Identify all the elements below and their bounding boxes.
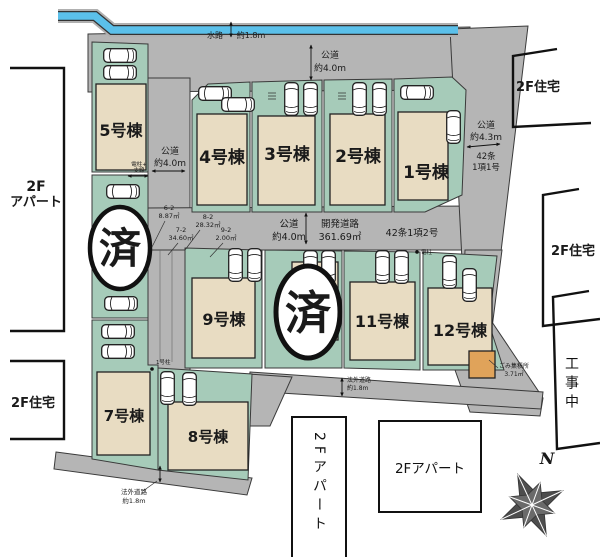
house-ne-label: 2F住宅 bbox=[516, 79, 560, 95]
car-icon bbox=[104, 66, 137, 80]
bldg-4-label: 4号棟 bbox=[199, 147, 246, 168]
pole-label: 電柱 bbox=[421, 248, 433, 256]
car-icon bbox=[102, 345, 135, 359]
south-mid-road-label-2: 約1.8m bbox=[347, 384, 369, 392]
pole-guy-label-2: 支線 bbox=[133, 166, 145, 174]
bldg-1-label: 1号棟 bbox=[403, 162, 450, 183]
apartment-south-tall: 2Fアパート bbox=[291, 416, 347, 557]
parcel-9-2-no: 9-2 bbox=[221, 226, 232, 234]
dev-road-label-2: 361.69㎡ bbox=[319, 232, 362, 243]
car-icon bbox=[285, 83, 299, 116]
bldg-2-label: 2号棟 bbox=[335, 146, 382, 167]
car-icon bbox=[161, 372, 175, 405]
center-road-label-1: 公道 bbox=[279, 218, 299, 230]
bldg-8-label: 8号棟 bbox=[188, 428, 229, 446]
south-left-road-label-2: 約1.8m bbox=[122, 496, 145, 505]
apartment-left-label-1: 2F bbox=[26, 179, 45, 195]
parcel-8-2-area: 28.32㎡ bbox=[195, 220, 221, 229]
apartment-south-box: 2Fアパート bbox=[378, 420, 482, 513]
car-icon bbox=[376, 251, 390, 284]
south-left-road-label-1: 法外道路 bbox=[121, 487, 148, 496]
bldg-11-label: 11号棟 bbox=[355, 312, 410, 331]
compass-ridges bbox=[487, 460, 577, 550]
parcel-7-2-no: 7-2 bbox=[176, 226, 187, 234]
house-e-label: 2F住宅 bbox=[551, 243, 595, 259]
construction-area: 工事中 bbox=[558, 356, 584, 451]
car-icon bbox=[229, 249, 243, 282]
parcel-8-2-no: 8-2 bbox=[203, 213, 214, 221]
car-icon bbox=[395, 251, 409, 284]
compass bbox=[487, 460, 577, 550]
pole-dot bbox=[415, 250, 419, 254]
west-road-label-1: 公道 bbox=[161, 145, 179, 157]
parcel-9-2-area: 2.00㎡ bbox=[216, 233, 237, 242]
garbage-label-2: 3.71㎡ bbox=[504, 370, 523, 378]
bldg-3-label: 3号棟 bbox=[264, 144, 311, 165]
site-plan: 済 済 5号棟 4号棟 3号棟 2号棟 1号棟 9号棟 11号棟 12号棟 7号… bbox=[0, 0, 600, 557]
car-icon bbox=[104, 49, 137, 63]
pole-guy-label-1: 電柱+ bbox=[131, 160, 147, 168]
construction-label: 工事中 bbox=[561, 356, 581, 451]
garbage-station bbox=[469, 351, 495, 378]
pole-no1-label: 1号柱 bbox=[156, 358, 171, 366]
car-icon bbox=[105, 297, 138, 311]
waterway bbox=[58, 16, 458, 30]
car-icon bbox=[107, 185, 140, 199]
waterway-label-1: 水路 bbox=[207, 30, 223, 40]
north-road-label-2: 約4.0m bbox=[314, 62, 346, 74]
dev-road-label-1: 開発道路 bbox=[321, 218, 360, 230]
parcel-6-2-no: 6-2 bbox=[164, 204, 175, 212]
south-mid-road-label-1: 法外道路 bbox=[347, 376, 371, 384]
car-icon bbox=[222, 98, 255, 112]
sold-stamp-label: 済 bbox=[99, 224, 142, 273]
car-icon bbox=[183, 373, 197, 406]
car-icon bbox=[304, 83, 318, 116]
bldg-5-label: 5号棟 bbox=[99, 121, 143, 140]
car-icon bbox=[443, 256, 457, 289]
pole-dot bbox=[150, 367, 154, 371]
car-icon bbox=[373, 83, 387, 116]
south-left-leader bbox=[143, 481, 157, 491]
car-icon bbox=[102, 325, 135, 339]
east-road-label-2: 約4.3m bbox=[470, 131, 502, 143]
car-icon bbox=[463, 269, 477, 302]
south-road-bend bbox=[248, 374, 292, 426]
north-road-label-1: 公道 bbox=[321, 49, 339, 61]
car-icon bbox=[401, 86, 434, 100]
waterway-label-2: 約1.8m bbox=[237, 30, 266, 40]
sold-stamp-label: 済 bbox=[285, 286, 332, 340]
parcel-7-2-area: 34.60㎡ bbox=[168, 233, 194, 242]
apartment-left-label-2: アパート bbox=[10, 195, 62, 210]
car-icon bbox=[447, 111, 461, 144]
bldg-1 bbox=[398, 112, 448, 200]
apartment-south-tall-label: 2Fアパート bbox=[309, 432, 329, 557]
car-icon bbox=[353, 83, 367, 116]
compass-north-label: N bbox=[539, 449, 556, 468]
apartment-south-box-label: 2Fアパート bbox=[395, 457, 465, 477]
bldg-7-label: 7号棟 bbox=[104, 407, 145, 425]
car-icon bbox=[248, 249, 262, 282]
center-road-label-2: 約4.0m bbox=[272, 231, 306, 243]
garbage-label-1: ごみ集積所 bbox=[499, 362, 529, 370]
parcel-6-2-area: 8.87㎡ bbox=[159, 211, 180, 220]
east-road-law-2: 1項1号 bbox=[472, 163, 500, 173]
bldg-12-label: 12号棟 bbox=[433, 321, 488, 340]
center-road-law: 42条1項2号 bbox=[386, 227, 439, 239]
bldg-9-label: 9号棟 bbox=[202, 310, 246, 329]
east-road-label-1: 公道 bbox=[477, 119, 495, 131]
east-road-law-1: 42条 bbox=[476, 151, 496, 162]
west-road-label-2: 約4.0m bbox=[154, 157, 186, 169]
house-sw-label: 2F住宅 bbox=[11, 395, 55, 411]
